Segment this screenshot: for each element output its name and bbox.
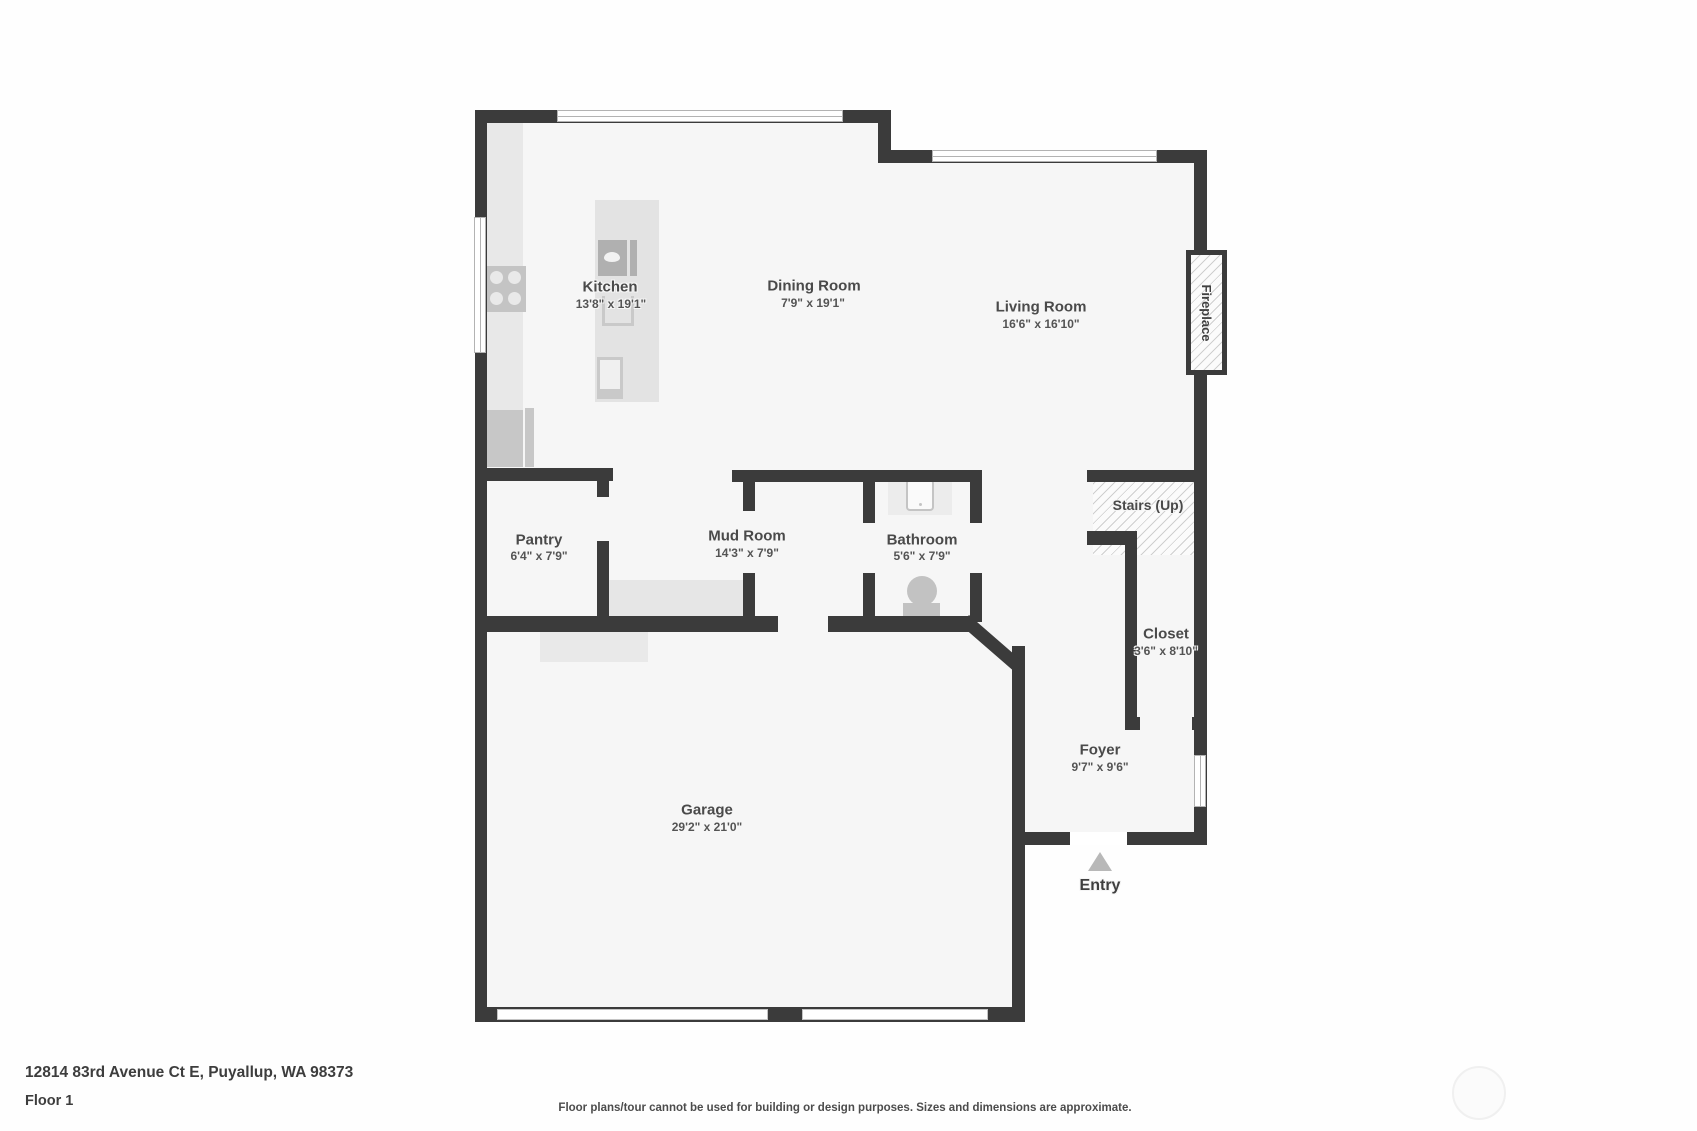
room-dims-living-room: 16'6" x 16'10" xyxy=(1002,317,1079,331)
refrigerator-icon xyxy=(525,408,534,467)
fireplace-label: Fireplace xyxy=(1199,284,1214,341)
room-dims-garage: 29'2" x 21'0" xyxy=(672,820,742,834)
watermark-logo xyxy=(1452,1066,1506,1120)
door-opening xyxy=(970,523,982,573)
room-label-kitchen: Kitchen xyxy=(582,279,637,296)
entry-label: Entry xyxy=(1080,877,1121,895)
dishwasher-icon xyxy=(597,357,623,399)
wall xyxy=(597,468,609,625)
floor-area xyxy=(481,632,1018,1016)
toilet-icon xyxy=(907,576,937,606)
door-opening xyxy=(1140,717,1192,730)
room-label-garage: Garage xyxy=(681,802,733,819)
wall xyxy=(1087,470,1207,482)
bathroom-sink-icon xyxy=(906,479,934,511)
wall xyxy=(475,616,975,632)
door-opening xyxy=(1070,832,1127,845)
address-text: 12814 83rd Avenue Ct E, Puyallup, WA 983… xyxy=(25,1064,353,1082)
rug xyxy=(600,580,750,618)
room-dims-dining-room: 7'9" x 19'1" xyxy=(781,296,845,310)
stove-burners-icon xyxy=(485,266,526,312)
room-dims-kitchen: 13'8" x 19'1" xyxy=(576,297,646,311)
room-dims-bathroom: 5'6" x 7'9" xyxy=(893,549,950,563)
floorplan-canvas: Fireplace Kitchen 13'8" x 19'1" Dining R… xyxy=(0,0,1697,1131)
wall xyxy=(1125,531,1137,730)
window xyxy=(1194,755,1206,807)
garage-door xyxy=(497,1009,768,1020)
door-opening xyxy=(778,616,828,632)
island-fridge-icon xyxy=(598,240,627,276)
fireplace: Fireplace xyxy=(1186,250,1227,375)
wall xyxy=(732,470,982,482)
floor-label: Floor 1 xyxy=(25,1093,73,1109)
garage-door xyxy=(802,1009,988,1020)
door-opening xyxy=(863,523,875,573)
door-opening xyxy=(597,497,609,541)
room-dims-mud-room: 14'3" x 7'9" xyxy=(715,546,779,560)
island-fridge-icon xyxy=(630,240,637,276)
room-dims-pantry: 6'4" x 7'9" xyxy=(510,549,567,563)
window xyxy=(932,150,1157,162)
room-label-pantry: Pantry xyxy=(516,532,563,549)
room-dims-closet: 3'6" x 8'10" xyxy=(1134,644,1198,658)
disclaimer-text: Floor plans/tour cannot be used for buil… xyxy=(558,1102,1131,1114)
window xyxy=(557,110,843,122)
refrigerator-icon xyxy=(486,410,523,467)
room-label-living-room: Living Room xyxy=(996,299,1087,316)
wall xyxy=(475,468,613,481)
room-label-foyer: Foyer xyxy=(1080,742,1121,759)
rug xyxy=(540,628,648,662)
room-label-bathroom: Bathroom xyxy=(887,532,958,549)
room-label-closet: Closet xyxy=(1143,626,1189,643)
room-label-dining-room: Dining Room xyxy=(767,278,860,295)
window xyxy=(474,217,486,353)
entry-arrow-icon xyxy=(1088,852,1112,871)
room-dims-foyer: 9'7" x 9'6" xyxy=(1071,760,1128,774)
room-label-mud-room: Mud Room xyxy=(708,528,785,545)
stairs-label: Stairs (Up) xyxy=(1113,497,1184,513)
